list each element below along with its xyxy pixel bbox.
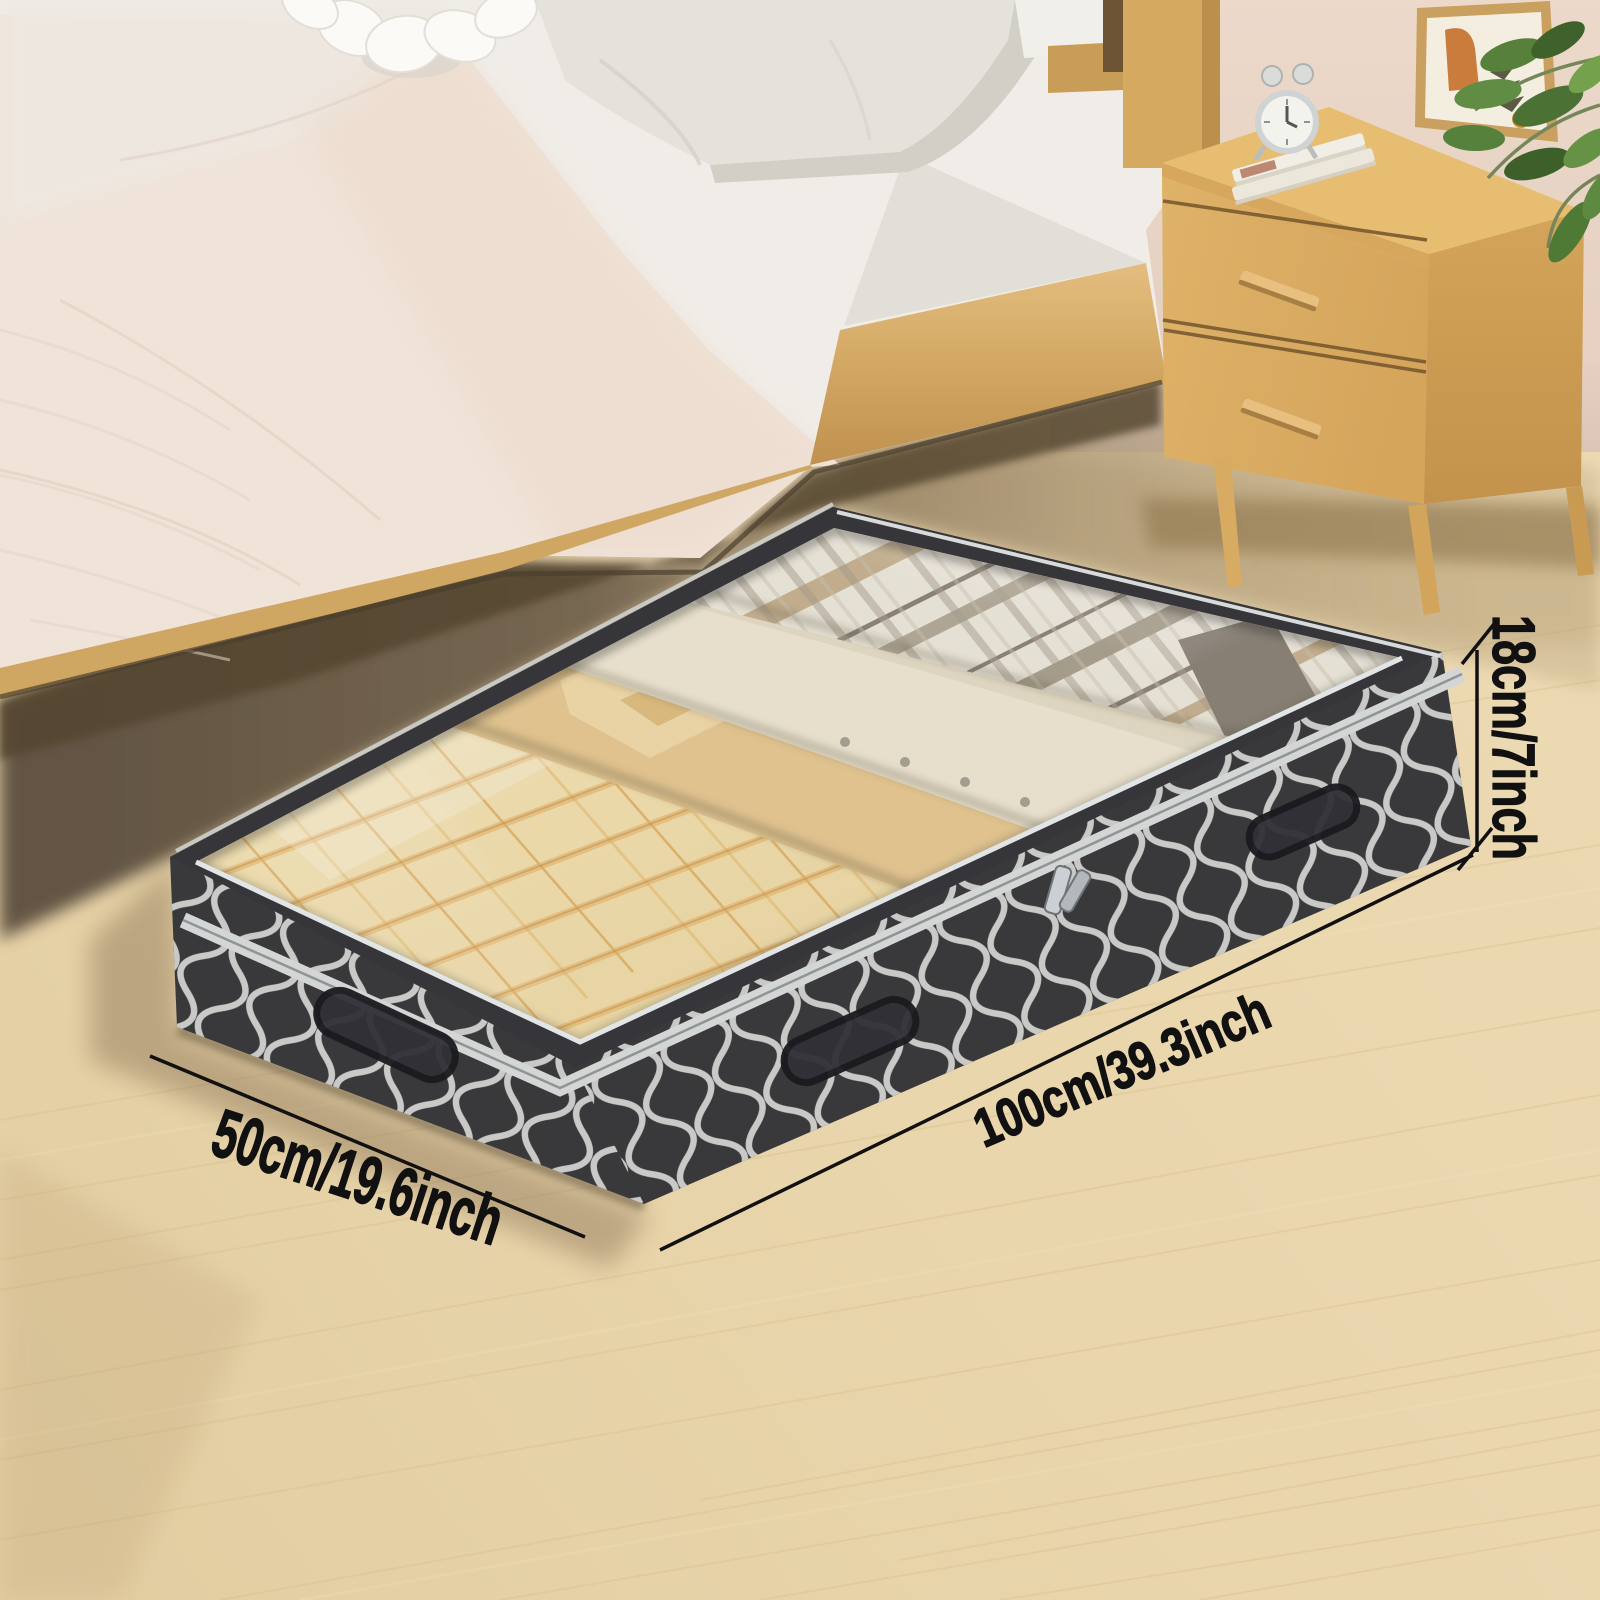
svg-text:18cm/7inch: 18cm/7inch: [1480, 615, 1547, 860]
